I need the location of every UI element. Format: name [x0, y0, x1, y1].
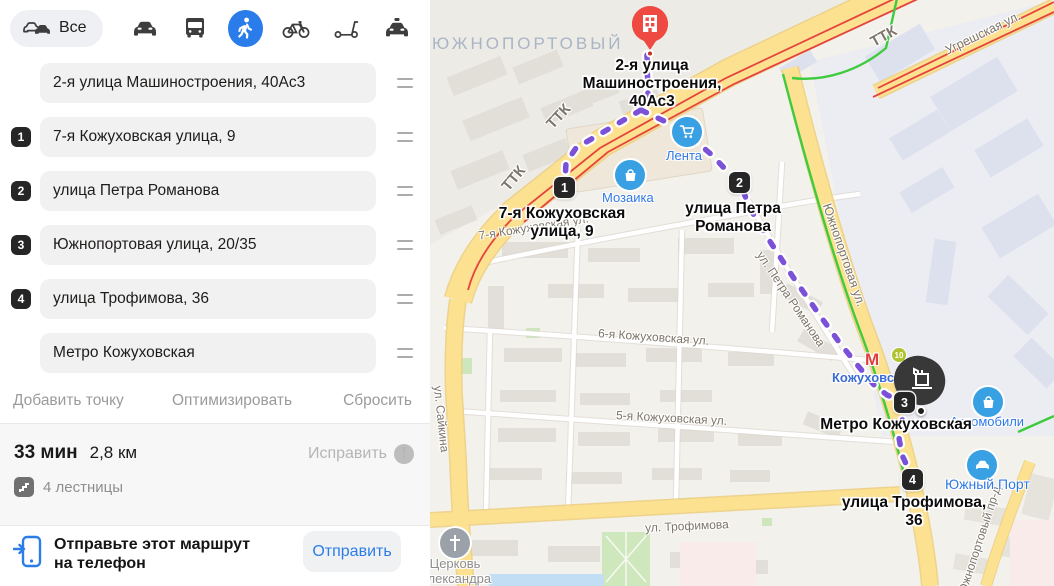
pedestrian-icon	[235, 16, 257, 40]
mode-all-label: Все	[59, 19, 87, 37]
traffic-icon	[22, 18, 52, 38]
map-waypoint-2[interactable]: 2	[729, 172, 750, 193]
route-point-row: 2 улица Петра Романова	[0, 171, 430, 211]
mode-taxi-button[interactable]	[372, 10, 422, 47]
send-button[interactable]: Отправить	[303, 531, 401, 572]
scooter-icon	[332, 16, 360, 40]
map-waypoint-4[interactable]: 4	[902, 469, 923, 490]
route-distance: 2,8 км	[90, 443, 137, 463]
stairs-count: 4 лестницы	[43, 479, 123, 496]
stairs-icon	[14, 477, 34, 497]
route-actions: Добавить точку Оптимизировать Сбросить	[0, 392, 422, 412]
drag-handle-icon[interactable]	[397, 294, 413, 304]
bike-icon	[281, 16, 311, 40]
route-point-row: 3 Южнопортовая улица, 20/35	[0, 225, 430, 265]
route-summary: 33 мин 2,8 км Исправить ! 4 лестницы	[0, 423, 430, 526]
route-duration: 33 мин	[14, 442, 78, 464]
metro-station-icon[interactable]: М	[865, 350, 879, 370]
map-waypoint-3[interactable]: 3	[894, 392, 915, 413]
bus-icon	[182, 16, 208, 40]
point-4-badge: 4	[11, 289, 31, 309]
warning-icon: !	[394, 444, 414, 464]
avtomobili-poi-icon[interactable]	[973, 387, 1003, 417]
map-waypoint-1[interactable]: 1	[554, 177, 575, 198]
mode-bus-button[interactable]	[170, 10, 220, 47]
map-base-layer	[430, 0, 1054, 586]
mode-scooter-button[interactable]	[321, 10, 371, 47]
route-point-input-4[interactable]: улица Трофимова, 36	[40, 279, 376, 319]
mode-all-chip[interactable]: Все	[10, 10, 103, 47]
route-point-input-1[interactable]: 7-я Кожуховская улица, 9	[40, 117, 376, 157]
point-3-badge: 3	[11, 235, 31, 255]
drag-handle-icon[interactable]	[397, 348, 413, 358]
yuzhny-port-poi-icon[interactable]	[967, 450, 997, 480]
route-point-row: Метро Кожуховская	[0, 333, 430, 373]
optimize-link[interactable]: Оптимизировать	[172, 392, 292, 410]
route-point-row: 1 7-я Кожуховская улица, 9	[0, 117, 430, 157]
lenta-poi-icon[interactable]	[672, 117, 702, 147]
map-end-point-dot[interactable]	[916, 406, 926, 416]
mode-bike-button[interactable]	[271, 10, 321, 47]
reset-link[interactable]: Сбросить	[343, 392, 412, 410]
start-pin[interactable]	[628, 2, 672, 63]
route-sidebar: Все	[0, 0, 430, 586]
map-canvas[interactable]: ЮЖНОПОРТОВЫЙ ТТК ТТК ТТК Угрешская ул. Ю…	[430, 0, 1054, 586]
church-poi-icon[interactable]	[440, 528, 470, 558]
point-1-badge: 1	[11, 127, 31, 147]
transport-mode-toolbar: Все	[0, 8, 422, 48]
send-to-phone-icon	[13, 534, 43, 575]
drag-handle-icon[interactable]	[397, 78, 413, 88]
car-icon	[131, 16, 159, 40]
route-point-row: 4 улица Трофимова, 36	[0, 279, 430, 319]
route-point-input-3[interactable]: Южнопортовая улица, 20/35	[40, 225, 376, 265]
send-to-phone-message: Отправьте этот маршрут на телефон	[54, 535, 250, 573]
drag-handle-icon[interactable]	[397, 132, 413, 142]
drag-handle-icon[interactable]	[397, 186, 413, 196]
send-to-phone-section: Отправьте этот маршрут на телефон Отправ…	[0, 527, 430, 586]
route-point-input-end[interactable]: Метро Кожуховская	[40, 333, 376, 373]
route-point-input-start[interactable]: 2-я улица Машиностроения, 40Ас3	[40, 63, 376, 103]
mozaika-poi-icon[interactable]	[615, 160, 645, 190]
mode-car-button[interactable]	[119, 10, 169, 47]
yandex-maps-route-planner: { "toolbar": { "all_label": "Все", "mode…	[0, 0, 1054, 586]
drag-handle-icon[interactable]	[397, 240, 413, 250]
add-point-link[interactable]: Добавить точку	[13, 392, 124, 410]
route-point-row: 2-я улица Машиностроения, 40Ас3	[0, 63, 430, 103]
point-2-badge: 2	[11, 181, 31, 201]
fix-route-link[interactable]: Исправить !	[308, 444, 414, 464]
mode-walk-button-selected[interactable]	[228, 10, 263, 47]
taxi-icon	[383, 16, 411, 40]
route-point-input-2[interactable]: улица Петра Романова	[40, 171, 376, 211]
